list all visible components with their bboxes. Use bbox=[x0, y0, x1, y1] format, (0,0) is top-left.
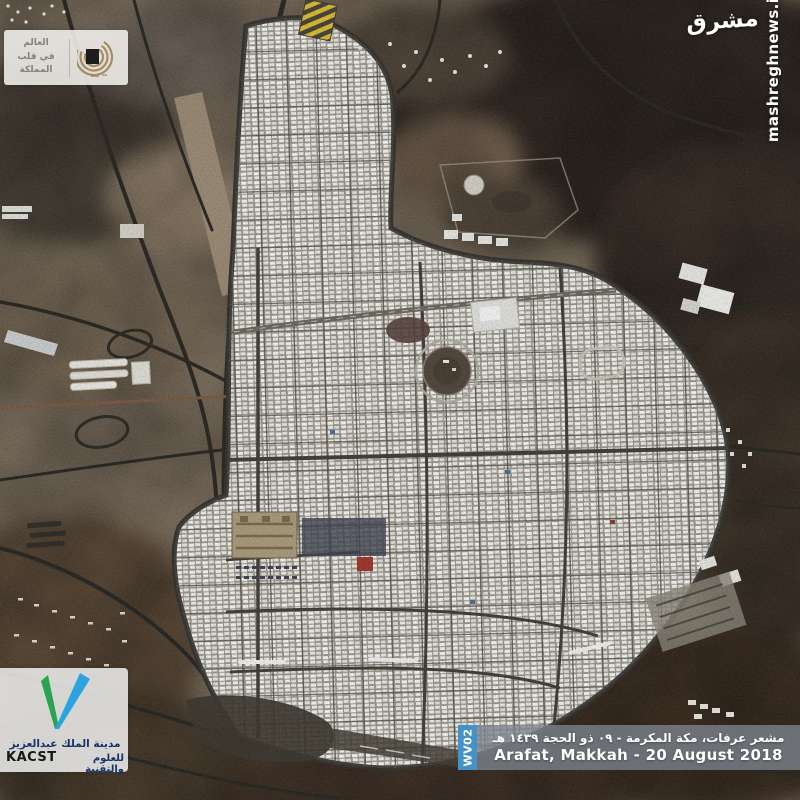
sensor-tab: WV02 bbox=[458, 725, 477, 770]
caption-bar: WV02 مشعر عرفات، مكة المكرمة - ٠٩ ذو الح… bbox=[458, 725, 800, 770]
mashregh-logo: مشرق bbox=[686, 6, 760, 37]
kacst-badge: مدينة الملك عبدالعزيز للعلوم والتقنية KA… bbox=[0, 668, 128, 772]
campaign-line-2: في قلب bbox=[11, 51, 61, 65]
campaign-line-1: العالم bbox=[11, 37, 61, 51]
kacst-check-icon bbox=[6, 671, 126, 733]
kaaba-arcs-icon bbox=[77, 36, 121, 80]
caption-arabic: مشعر عرفات، مكة المكرمة - ٠٩ ذو الحجة ١٤… bbox=[493, 731, 785, 745]
badge-divider bbox=[69, 39, 70, 77]
caption-english: Arafat, Makkah - 20 August 2018 bbox=[494, 746, 783, 764]
sensor-label: WV02 bbox=[461, 729, 474, 767]
satellite-screenshot: العالم في قلب المملكة مشرق mashreghnews.… bbox=[0, 0, 800, 800]
kacst-subtitle-arabic: للعلوم والتقنية bbox=[61, 753, 124, 775]
kingdom-campaign-text: العالم في قلب المملكة bbox=[11, 37, 61, 79]
kingdom-campaign-badge: العالم في قلب المملكة bbox=[4, 30, 128, 85]
kacst-name-arabic: مدينة الملك عبدالعزيز bbox=[6, 738, 124, 750]
kacst-acronym: KACST bbox=[6, 750, 57, 765]
kacst-subtitle: للعلوم والتقنية KACST bbox=[6, 750, 124, 775]
campaign-line-3: المملكة bbox=[11, 64, 61, 78]
mashregh-website-vertical: mashreghnews.ir bbox=[762, 10, 784, 122]
caption-text-area: مشعر عرفات، مكة المكرمة - ٠٩ ذو الحجة ١٤… bbox=[477, 725, 800, 770]
